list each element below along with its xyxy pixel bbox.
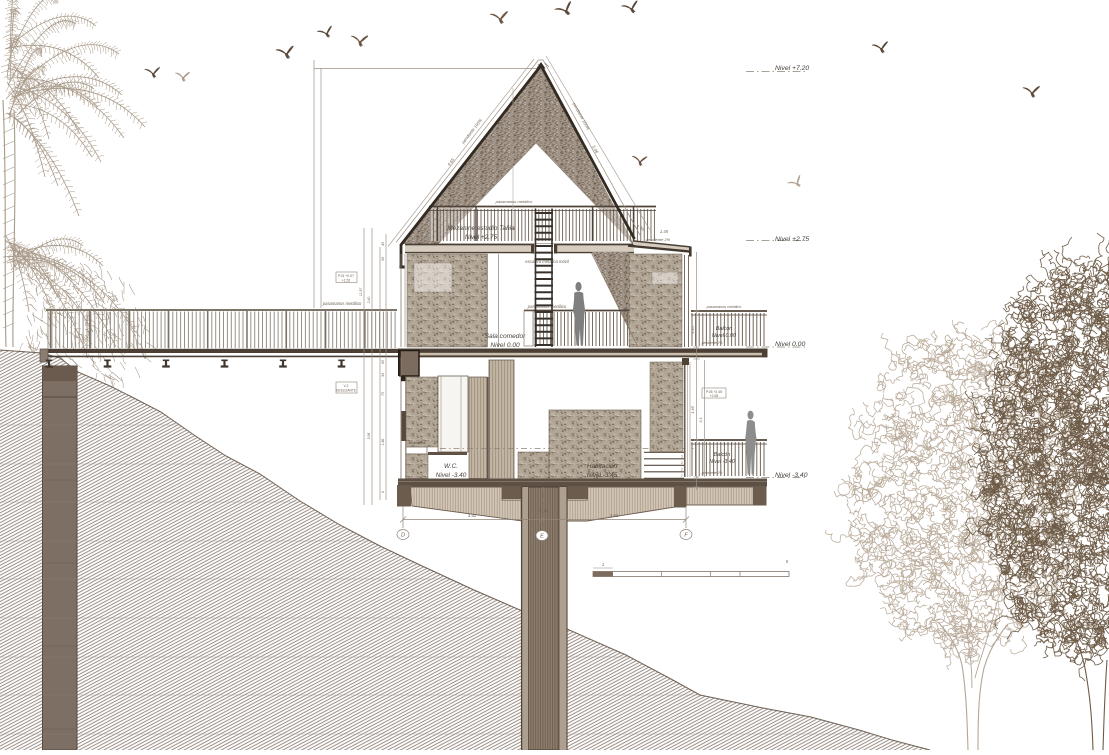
- svg-text:54: 54: [381, 257, 385, 261]
- svg-text:2: 2: [681, 468, 683, 472]
- svg-text:6: 6: [381, 491, 385, 493]
- svg-text:+1.52: +1.52: [342, 279, 351, 283]
- svg-text:Mezanine estudio Tañia: Mezanine estudio Tañia: [447, 225, 515, 232]
- svg-text:pendiente 2%: pendiente 2%: [701, 341, 723, 345]
- svg-text:11.97: 11.97: [359, 288, 363, 296]
- svg-text:Nivel 0.00: Nivel 0.00: [490, 342, 520, 349]
- svg-text:Habitación: Habitación: [587, 463, 618, 470]
- svg-text:Nivel 0.00: Nivel 0.00: [775, 341, 805, 348]
- svg-text:7: 7: [681, 474, 683, 478]
- svg-text:V-2: V-2: [344, 384, 349, 388]
- svg-text:1.86: 1.86: [381, 439, 385, 446]
- svg-text:D: D: [401, 533, 405, 539]
- svg-text:Nivel 0.00: Nivel 0.00: [712, 333, 736, 339]
- svg-text:3.42: 3.42: [468, 513, 477, 518]
- svg-text:Nivel +2.75: Nivel +2.75: [465, 234, 498, 241]
- svg-text:1.45: 1.45: [660, 229, 669, 234]
- svg-text:1.45: 1.45: [690, 325, 695, 334]
- svg-text:34: 34: [381, 373, 385, 377]
- svg-text:Sala comedor: Sala comedor: [485, 333, 526, 340]
- svg-text:P.01 +0.07: P.01 +0.07: [338, 274, 354, 278]
- svg-text:3.61: 3.61: [610, 513, 619, 518]
- svg-text:2.60: 2.60: [367, 297, 371, 305]
- svg-text:Nivel -3.40: Nivel -3.40: [436, 472, 467, 479]
- svg-text:Nivel -3.45: Nivel -3.45: [587, 472, 618, 479]
- svg-text:W.C.: W.C.: [444, 463, 458, 470]
- svg-text:3.1: 3.1: [698, 417, 703, 423]
- svg-text:Balcón: Balcón: [716, 326, 732, 332]
- svg-text:Nivel +7.20: Nivel +7.20: [775, 65, 809, 72]
- svg-text:Nivel +2.75: Nivel +2.75: [775, 236, 809, 243]
- svg-text:pasamanos metálico: pasamanos metálico: [495, 199, 533, 204]
- svg-text:pasamanos metálico: pasamanos metálico: [322, 301, 362, 306]
- svg-text:45: 45: [381, 242, 385, 246]
- svg-text:pasamanos metálico: pasamanos metálico: [706, 305, 742, 309]
- svg-text:2: 2: [681, 461, 683, 465]
- svg-text:E: E: [540, 534, 544, 540]
- svg-text:Nivel -3.40: Nivel -3.40: [709, 459, 735, 465]
- svg-text:Balcón: Balcón: [714, 452, 730, 458]
- svg-text:3.95: 3.95: [367, 433, 371, 440]
- svg-text:lavamanos: lavamanos: [409, 441, 426, 445]
- svg-text:pendiente 2%: pendiente 2%: [701, 471, 723, 475]
- svg-text:75: 75: [381, 392, 385, 396]
- svg-text:1.45: 1.45: [690, 405, 695, 414]
- svg-text:pendiente 2%: pendiente 2%: [645, 237, 671, 242]
- svg-text:+2.65: +2.65: [710, 394, 719, 398]
- svg-text:Nivel -3.40: Nivel -3.40: [775, 472, 808, 479]
- svg-text:3: 3: [681, 455, 683, 459]
- svg-text:85: 85: [381, 360, 385, 364]
- svg-text:DESLIZANTE: DESLIZANTE: [336, 389, 356, 393]
